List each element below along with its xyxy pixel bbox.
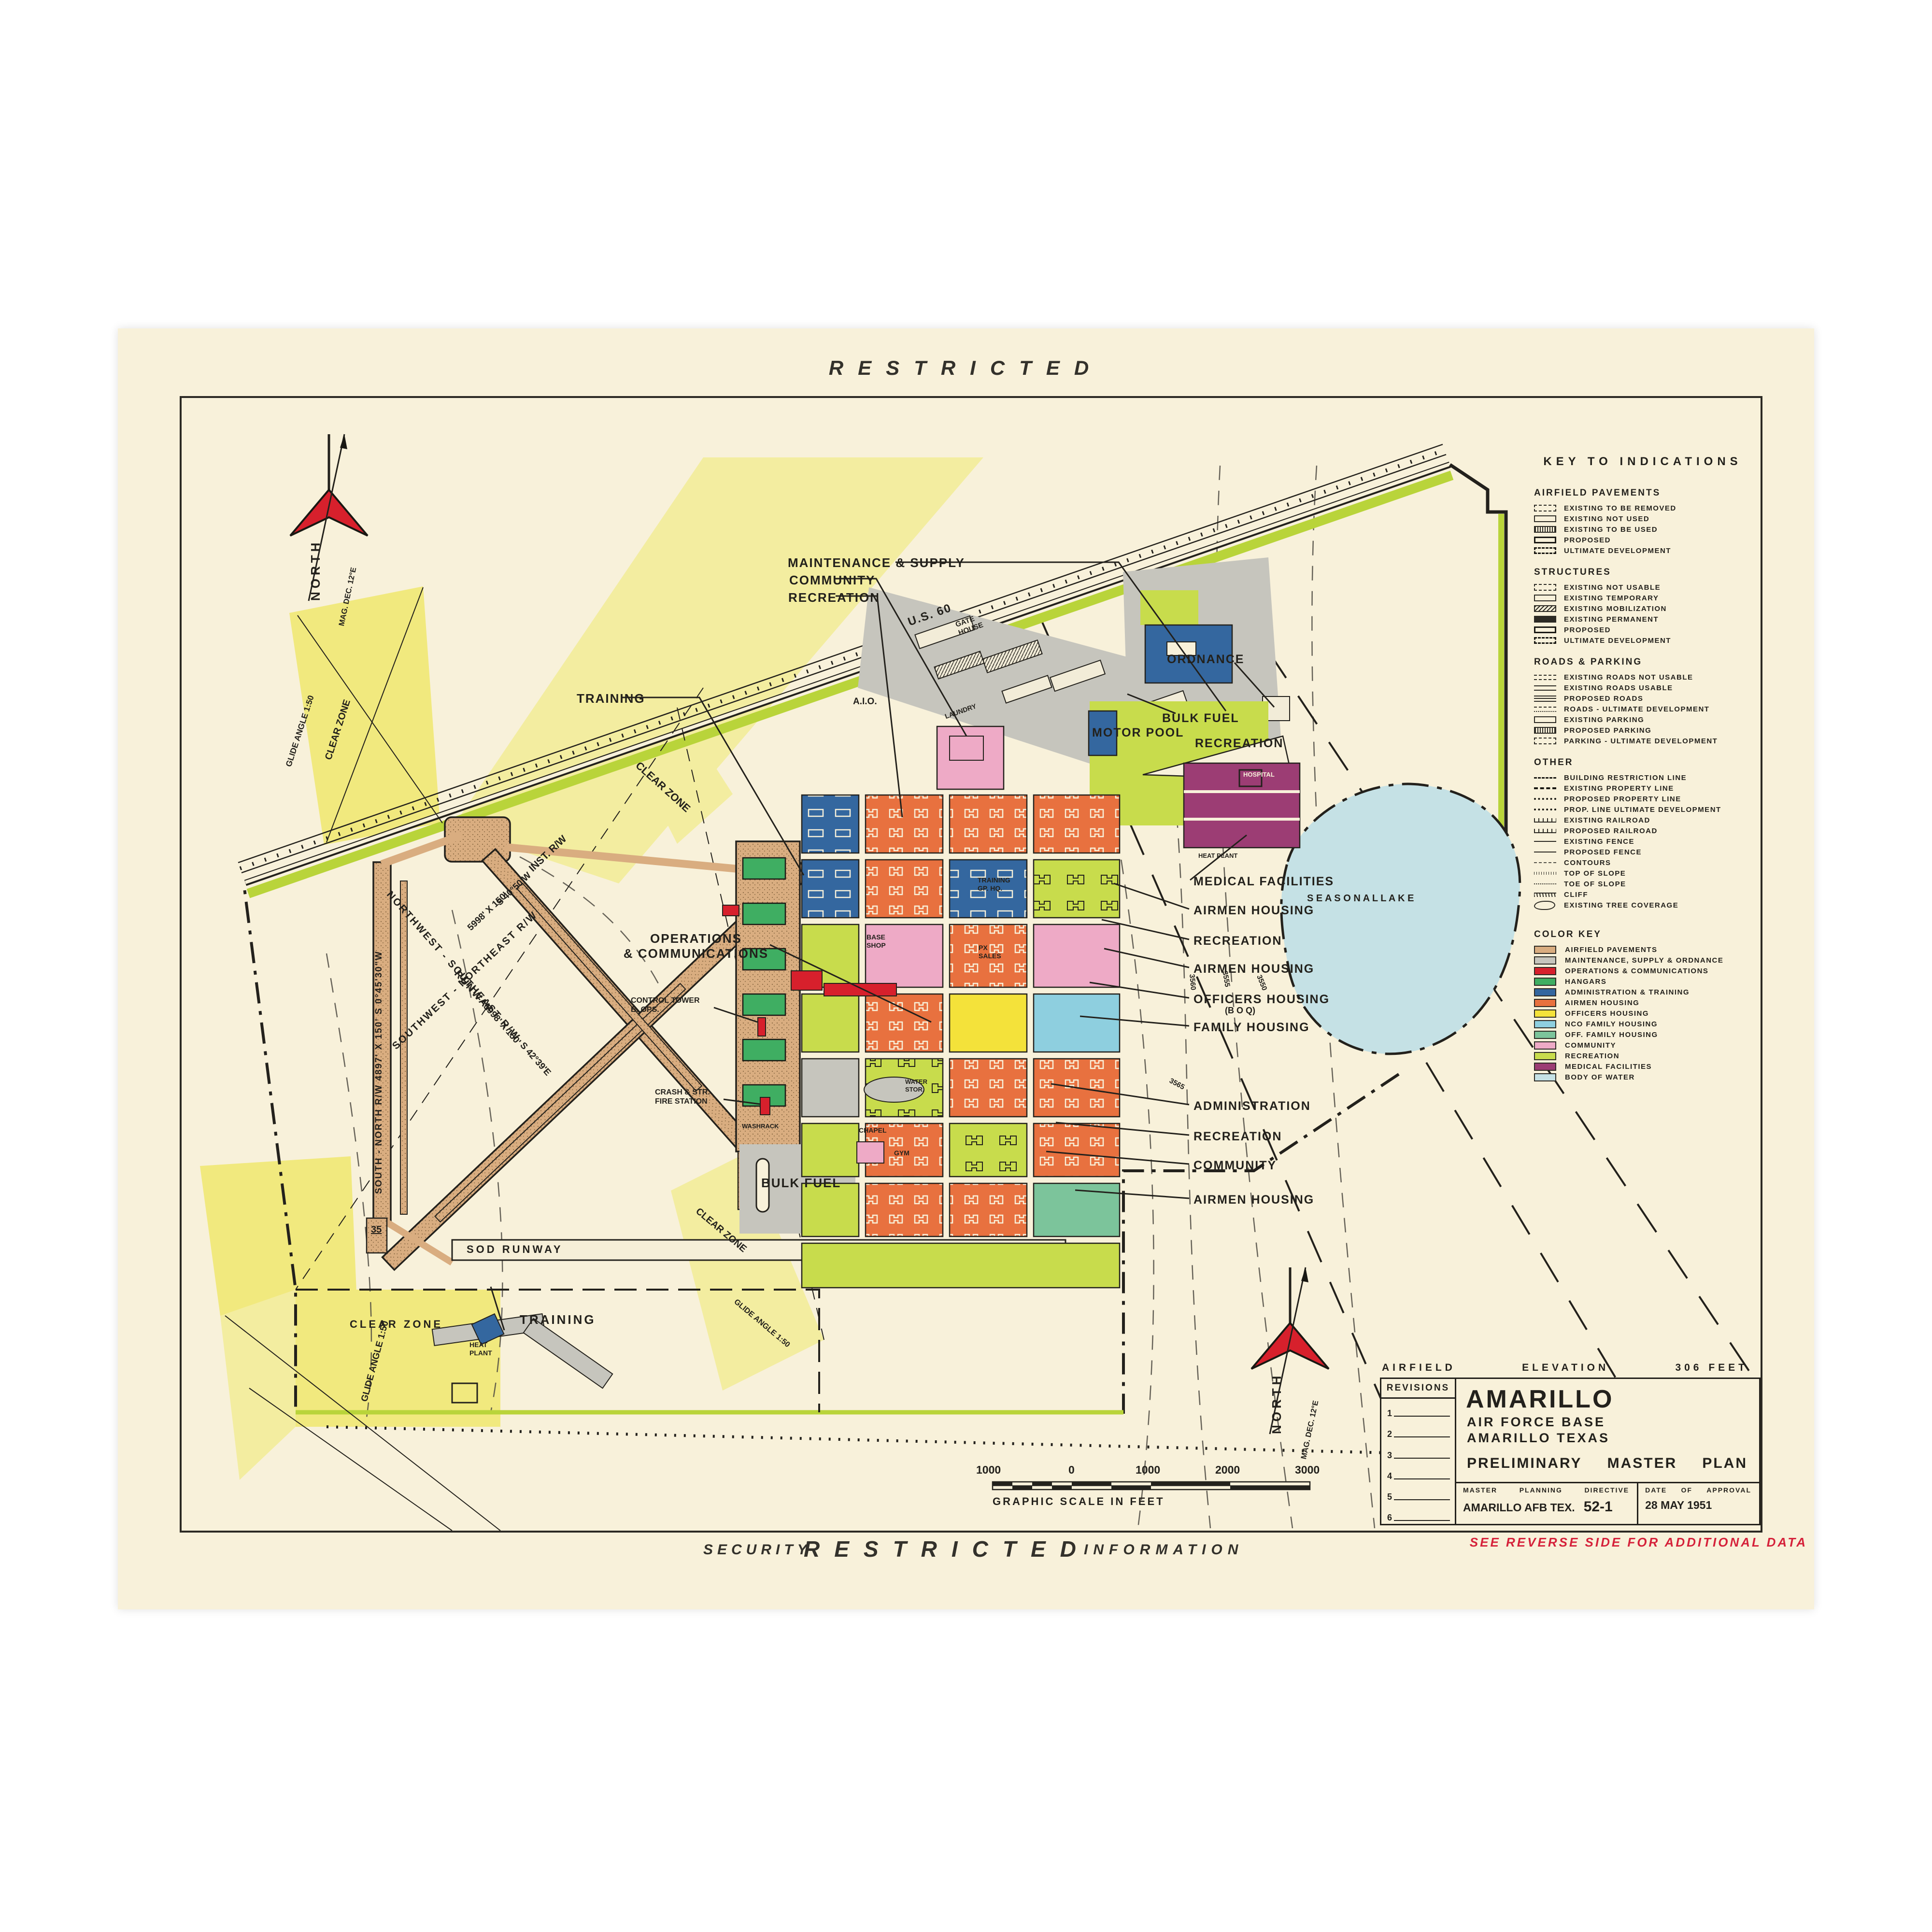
color-key-item: NCO FAMILY HOUSING [1534, 1020, 1756, 1028]
legend-section-structures: STRUCTURES [1534, 567, 1756, 578]
revisions-header: REVISIONS [1381, 1379, 1455, 1399]
legend-item: CONTOURS [1534, 859, 1756, 867]
swatch-nco-family-housing [1534, 1020, 1556, 1028]
label-recreation-lake: RECREATION [1195, 736, 1283, 751]
label-airmen-housing-2: AIRMEN HOUSING [1193, 962, 1314, 976]
revision-line [1394, 1478, 1450, 1479]
label-gym: GYM [894, 1149, 909, 1157]
structure-proposed-symbol [1534, 626, 1556, 633]
legend-item: ROADS - ULTIMATE DEVELOPMENT [1534, 705, 1756, 713]
label-heat-plant-annex: HEAT PLANT [469, 1341, 492, 1357]
revision-row: 6 [1381, 1503, 1455, 1524]
legend-item: ULTIMATE DEVELOPMENT [1534, 547, 1756, 554]
label-motor-pool: MOTOR POOL [1092, 725, 1184, 740]
label-bulk-fuel-lower: BULK FUEL [761, 1176, 841, 1191]
swatch-recreation [1534, 1052, 1556, 1060]
legend-item: PROPOSED ROADS [1534, 695, 1756, 702]
swatch-body-of-water [1534, 1073, 1556, 1081]
legend-item: EXISTING TO BE USED [1534, 526, 1756, 533]
color-key-item: AIRMEN HOUSING [1534, 999, 1756, 1007]
revision-row: 3 [1381, 1440, 1455, 1461]
structure-permanent-symbol [1534, 616, 1556, 623]
label-north-1: NORTH [308, 540, 323, 601]
approval-header: DATE OF APPROVAL [1645, 1486, 1754, 1494]
structure-ultimate-symbol [1534, 637, 1556, 644]
proposed-railroad-symbol [1534, 829, 1556, 833]
top-restricted-banner: RESTRICTED [118, 356, 1814, 380]
scale-bar-graphic [993, 1482, 1310, 1490]
label-control-tower: CONTROL TOWER B. OPS. [631, 996, 700, 1014]
swatch-maintenance-supply-ordnance [1534, 956, 1556, 965]
legend-item: EXISTING NOT USABLE [1534, 583, 1756, 591]
label-recreation-1: RECREATION [1193, 934, 1282, 948]
base-line2: AIR FORCE BASE [1456, 1414, 1759, 1430]
pavement-to-be-used-symbol [1534, 526, 1556, 533]
contours-symbol [1534, 862, 1556, 863]
structure-not-usable-symbol [1534, 584, 1556, 591]
legend-item: EXISTING RAILROAD [1534, 816, 1756, 824]
label-recreation-top: RECREATION [788, 590, 880, 605]
legend-section-roads-parking: ROADS & PARKING [1534, 657, 1756, 668]
building-restriction-line-symbol [1534, 777, 1556, 779]
map-sheet-paper: RESTRICTED [118, 328, 1814, 1609]
legend-item: ULTIMATE DEVELOPMENT [1534, 637, 1756, 644]
label-administration: ADMINISTRATION [1193, 1099, 1311, 1113]
master-planning-directive-cell: MASTER PLANNING DIRECTIVE AMARILLO AFB T… [1456, 1483, 1638, 1524]
scale-label-2000: 2000 [1215, 1463, 1240, 1477]
legend-item: PROPOSED [1534, 536, 1756, 544]
title-block: AIRFIELD ELEVATION 306 FEET REVISIONS 1 … [1380, 1360, 1761, 1531]
color-key-item: BODY OF WATER [1534, 1073, 1756, 1081]
color-key-item: AIRFIELD PAVEMENTS [1534, 946, 1756, 953]
parking-proposed-symbol [1534, 727, 1556, 734]
tree-coverage-symbol [1534, 901, 1555, 910]
legend-item: EXISTING MOBILIZATION [1534, 605, 1756, 612]
bottom-information-word: INFORMATION [1084, 1542, 1243, 1558]
community-gate-area [937, 726, 1004, 789]
color-key-item: MEDICAL FACILITIES [1534, 1063, 1756, 1070]
label-medical-facilities: MEDICAL FACILITIES [1193, 874, 1334, 889]
swatch-hangars [1534, 978, 1556, 986]
legend-section-color-key: COLOR KEY [1534, 929, 1756, 940]
legend-item: PROPOSED FENCE [1534, 848, 1756, 856]
approval-date: 28 MAY 1951 [1645, 1494, 1754, 1512]
label-heat-plant-hospital: HEAT PLANT [1198, 852, 1237, 860]
revision-line [1394, 1499, 1450, 1500]
legend-item: PROPOSED [1534, 626, 1756, 634]
label-officers-housing-boq: (B O Q) [1225, 1006, 1255, 1016]
color-key-item: MAINTENANCE, SUPPLY & ORDNANCE [1534, 956, 1756, 964]
label-contour-3560: 3560 [1187, 974, 1197, 991]
elevation-word-airfield: AIRFIELD [1382, 1362, 1456, 1374]
legend-item: PROPOSED PROPERTY LINE [1534, 795, 1756, 803]
roads-ultimate-symbol [1534, 707, 1556, 712]
pavement-ultimate-symbol [1534, 547, 1556, 554]
label-sod-runway: SOD RUNWAY [467, 1243, 563, 1256]
label-clear-zone-sw: CLEAR ZONE [350, 1318, 443, 1331]
bottom-security-word: SECURITY [703, 1542, 811, 1558]
legend-item: EXISTING TO BE REMOVED [1534, 504, 1756, 512]
revision-line [1394, 1520, 1450, 1521]
label-officers-housing: OFFICERS HOUSING [1193, 992, 1330, 1007]
existing-property-line-symbol [1534, 787, 1556, 789]
bottom-restricted-word: RESTRICTED [804, 1536, 1091, 1562]
label-base-shop: BASE SHOP [867, 933, 886, 950]
legend-section-airfield-pavements: AIRFIELD PAVEMENTS [1534, 488, 1756, 498]
scale-label-1000e: 1000 [1136, 1463, 1160, 1477]
plan-word-master: MASTER [1607, 1455, 1677, 1472]
swatch-medical-facilities [1534, 1063, 1556, 1071]
legend-item: EXISTING ROADS NOT USABLE [1534, 673, 1756, 681]
legend-item: EXISTING FENCE [1534, 838, 1756, 845]
mpd-value: AMARILLO AFB TEX. [1463, 1501, 1575, 1514]
legend-item: EXISTING ROADS USABLE [1534, 684, 1756, 692]
scale-caption: GRAPHIC SCALE IN FEET [993, 1495, 1165, 1508]
legend-item: PROPOSED RAILROAD [1534, 827, 1756, 835]
label-seasonal-lake: S E A S O N A L L A K E [1307, 893, 1414, 904]
proposed-fence-symbol [1534, 852, 1556, 852]
legend-item: EXISTING PERMANENT [1534, 615, 1756, 623]
legend-item: PROP. LINE ULTIMATE DEVELOPMENT [1534, 806, 1756, 813]
label-airmen-housing-1: AIRMEN HOUSING [1193, 903, 1314, 918]
legend-item: PARKING - ULTIMATE DEVELOPMENT [1534, 737, 1756, 745]
base-name: AMARILLO [1456, 1379, 1759, 1414]
top-of-slope-symbol [1534, 872, 1556, 875]
elevation-value: 306 FEET [1675, 1362, 1748, 1374]
label-water-stor: WATER STOR. [905, 1078, 927, 1093]
color-key-item: RECREATION [1534, 1052, 1756, 1060]
prop-line-ultimate-symbol [1534, 809, 1556, 810]
toe-of-slope-symbol [1534, 883, 1556, 884]
map-frame: MAINTENANCE & SUPPLY COMMUNITY RECREATIO… [180, 396, 1762, 1533]
label-bulk-fuel-upper: BULK FUEL [1162, 711, 1239, 725]
label-operations-communications: OPERATIONS & COMMUNICATIONS [621, 931, 771, 961]
structure-temporary-symbol [1534, 595, 1556, 601]
scale-label-0: 0 [1068, 1463, 1075, 1477]
scanned-map-page: { "page": { "top_banner": "RESTRICTED", … [0, 0, 1932, 1932]
label-ordnance: ORDNANCE [1167, 652, 1244, 667]
airfield-elevation-row: AIRFIELD ELEVATION 306 FEET [1380, 1360, 1761, 1378]
legend-item: EXISTING TEMPORARY [1534, 594, 1756, 602]
plan-title-row: PRELIMINARY MASTER PLAN [1456, 1446, 1759, 1475]
swatch-officers-housing [1534, 1009, 1556, 1018]
revision-line [1394, 1436, 1450, 1437]
label-crash-fire-station: CRASH & STR. FIRE STATION [655, 1088, 710, 1106]
color-key-item: OFF. FAMILY HOUSING [1534, 1031, 1756, 1038]
legend-title: KEY TO INDICATIONS [1529, 455, 1756, 469]
revision-row: 4 [1381, 1462, 1455, 1482]
cliff-symbol [1534, 893, 1556, 897]
existing-fence-symbol [1534, 841, 1556, 842]
color-key-item: OFFICERS HOUSING [1534, 1009, 1756, 1017]
pavement-removed-symbol [1534, 505, 1556, 511]
elevation-word-elevation: ELEVATION [1522, 1362, 1609, 1374]
pavement-not-used-symbol [1534, 515, 1556, 522]
color-key-item: ADMINISTRATION & TRAINING [1534, 988, 1756, 996]
roads-proposed-symbol [1534, 696, 1556, 702]
swatch-airmen-housing [1534, 999, 1556, 1007]
label-px-sales: PX SALES [979, 944, 1001, 960]
label-chapel: CHAPEL [859, 1126, 887, 1135]
label-family-housing: FAMILY HOUSING [1193, 1020, 1310, 1035]
pavement-proposed-symbol [1534, 537, 1556, 543]
label-aio: A.I.O. [853, 696, 877, 708]
plan-word-plan: PLAN [1702, 1455, 1747, 1472]
title-block-bottom-row: MASTER PLANNING DIRECTIVE AMARILLO AFB T… [1456, 1482, 1759, 1524]
color-key-item: OPERATIONS & COMMUNICATIONS [1534, 967, 1756, 975]
swatch-administration-training [1534, 988, 1556, 996]
color-key-item: COMMUNITY [1534, 1041, 1756, 1049]
label-community-mid: COMMUNITY [1193, 1158, 1277, 1173]
swatch-operations-communications [1534, 967, 1556, 975]
proposed-property-line-symbol [1534, 798, 1556, 800]
label-recreation-2: RECREATION [1193, 1129, 1282, 1144]
parking-ultimate-symbol [1534, 738, 1556, 744]
legend-item: CLIFF [1534, 891, 1756, 898]
legend-section-other: OTHER [1534, 757, 1756, 768]
scale-label-1000w: 1000 [976, 1463, 1001, 1477]
title-block-main: AMARILLO AIR FORCE BASE AMARILLO TEXAS P… [1456, 1379, 1759, 1524]
swatch-airfield-pavements [1534, 946, 1556, 954]
label-maintenance-supply: MAINTENANCE & SUPPLY [788, 555, 965, 570]
legend-item: EXISTING NOT USED [1534, 515, 1756, 523]
label-airmen-housing-3: AIRMEN HOUSING [1193, 1193, 1314, 1207]
label-runway-south-north: SOUTH - NORTH R/W 4897' X 150' S 0°45'30… [374, 951, 385, 1194]
label-north-2: NORTH [1269, 1373, 1284, 1434]
legend-item: PROPOSED PARKING [1534, 726, 1756, 734]
label-hospital: HOSPITAL [1243, 771, 1275, 779]
revision-line [1394, 1458, 1450, 1459]
title-block-box: REVISIONS 1 2 3 4 5 6 AMARILLO AIR FORCE… [1380, 1378, 1761, 1525]
see-reverse-note: SEE REVERSE SIDE FOR ADDITIONAL DATA [1470, 1535, 1807, 1550]
label-washrack: WASHRACK [742, 1122, 779, 1130]
label-training-annex: TRAINING [520, 1312, 596, 1327]
revision-row: 2 [1381, 1420, 1455, 1440]
legend-item: EXISTING PROPERTY LINE [1534, 784, 1756, 792]
existing-railroad-symbol [1534, 818, 1556, 823]
swatch-off-family-housing [1534, 1031, 1556, 1039]
roads-usable-symbol [1534, 685, 1556, 691]
label-runway-35: 35 [371, 1224, 382, 1236]
swatch-community [1534, 1041, 1556, 1050]
plan-word-preliminary: PRELIMINARY [1467, 1455, 1582, 1472]
legend-item: EXISTING PARKING [1534, 716, 1756, 724]
revisions-column: REVISIONS 1 2 3 4 5 6 [1381, 1379, 1456, 1524]
date-of-approval-cell: DATE OF APPROVAL 28 MAY 1951 [1638, 1483, 1759, 1524]
roads-not-usable-symbol [1534, 675, 1556, 680]
revision-row: 5 [1381, 1482, 1455, 1503]
parking-existing-symbol [1534, 716, 1556, 723]
scale-label-3000: 3000 [1295, 1463, 1320, 1477]
legend-item: EXISTING TREE COVERAGE [1534, 901, 1756, 909]
color-key-item: HANGARS [1534, 978, 1756, 985]
legend-item: TOE OF SLOPE [1534, 880, 1756, 888]
housing-grid [802, 795, 1120, 1288]
mpd-value-row: AMARILLO AFB TEX. 52-1 [1463, 1494, 1632, 1515]
revision-row: 1 [1381, 1399, 1455, 1420]
structure-mobilization-symbol [1534, 605, 1556, 612]
legend-item: BUILDING RESTRICTION LINE [1534, 774, 1756, 781]
label-training-left: TRAINING [577, 691, 645, 706]
label-community-top: COMMUNITY [789, 573, 875, 588]
mpd-header: MASTER PLANNING DIRECTIVE [1463, 1486, 1632, 1494]
mpd-number: 52-1 [1584, 1499, 1613, 1515]
revision-line [1394, 1416, 1450, 1417]
legend-item: TOP OF SLOPE [1534, 869, 1756, 877]
base-line3: AMARILLO TEXAS [1456, 1430, 1759, 1446]
legend-panel: KEY TO INDICATIONS AIRFIELD PAVEMENTS EX… [1529, 455, 1756, 1084]
label-training-gp-hq: TRAINING GP. HQ. [978, 876, 1010, 893]
hospital-block [1184, 763, 1300, 848]
